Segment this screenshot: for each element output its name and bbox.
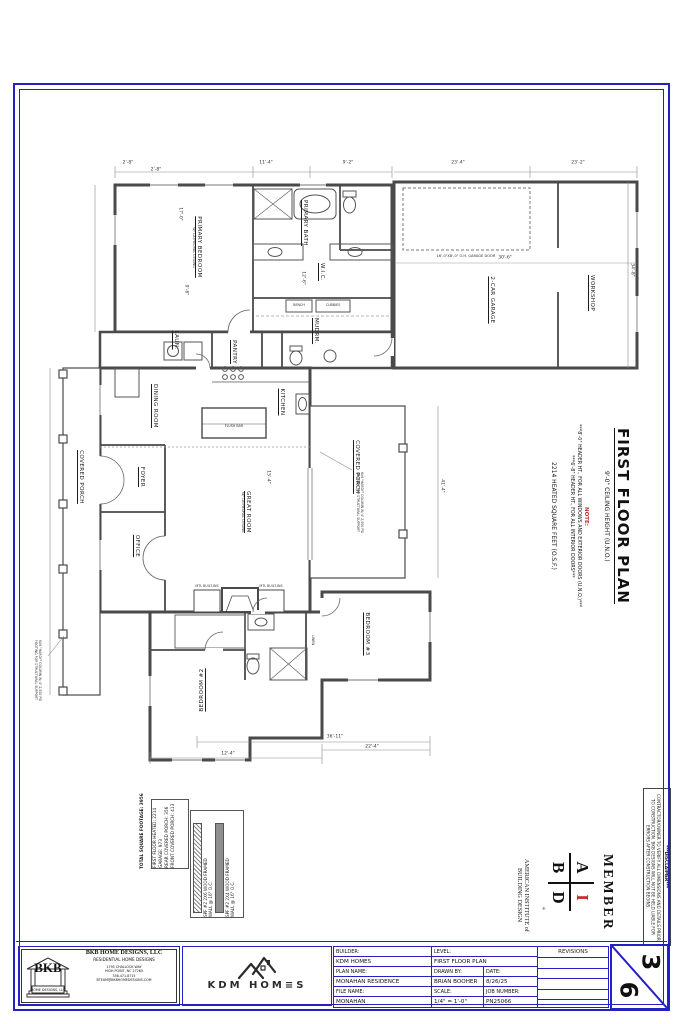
drawing-sheet: PRIMARY BEDROOM W/ CATHEDRAL CEILING PRI…	[0, 0, 683, 1024]
sheet-border-inner	[19, 89, 664, 1005]
